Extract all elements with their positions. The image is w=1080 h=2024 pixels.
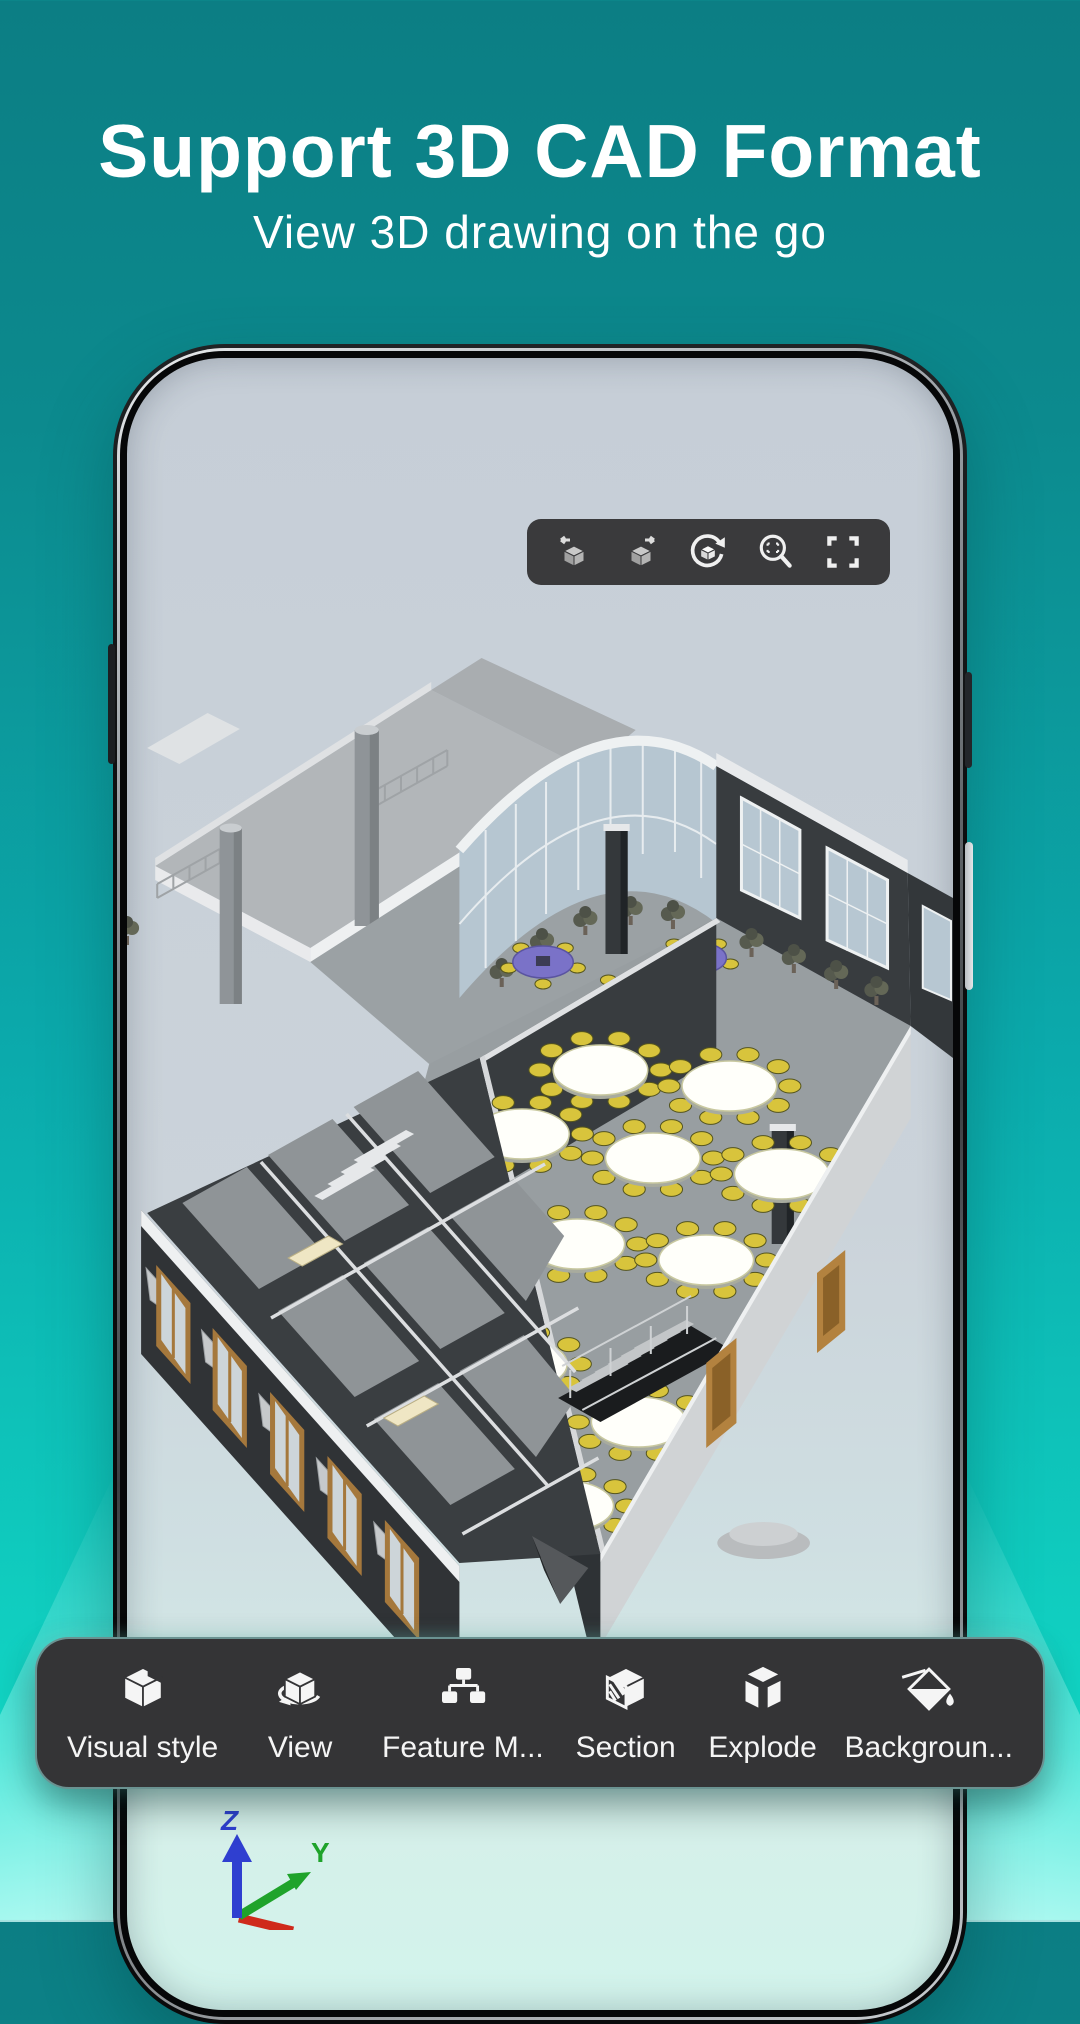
- volume-button: [965, 672, 972, 768]
- orbit-view-icon[interactable]: [682, 526, 734, 578]
- viewer-toolbar: [527, 519, 890, 585]
- toolbar-item-explode[interactable]: Explode: [708, 1661, 818, 1765]
- feature-toolbar: Visual style View Feature M...: [35, 1637, 1045, 1789]
- side-button-left: [108, 644, 115, 764]
- toolbar-item-background[interactable]: Backgroun...: [845, 1661, 1013, 1765]
- view-icon: [272, 1661, 328, 1722]
- section-icon: [598, 1661, 654, 1722]
- promo-screenshot: { "header": { "title": "Support 3D CAD F…: [0, 0, 1080, 1920]
- toolbar-item-label: Feature M...: [382, 1731, 544, 1765]
- feature-manager-icon: [435, 1661, 491, 1722]
- toolbar-item-label: Section: [576, 1731, 676, 1765]
- toolbar-item-view[interactable]: View: [245, 1661, 355, 1765]
- page-subtitle: View 3D drawing on the go: [0, 205, 1080, 259]
- axis-y-label: Y: [311, 1837, 330, 1868]
- axis-indicator: Z Y: [159, 1810, 359, 1930]
- power-button: [965, 842, 973, 990]
- toolbar-item-visual-style[interactable]: Visual style: [67, 1661, 218, 1765]
- background-icon: [901, 1661, 957, 1722]
- toolbar-item-label: Backgroun...: [845, 1731, 1013, 1765]
- previous-view-icon[interactable]: [548, 526, 600, 578]
- toolbar-item-feature-manager[interactable]: Feature M...: [382, 1661, 544, 1765]
- fullscreen-icon[interactable]: [817, 526, 869, 578]
- next-view-icon[interactable]: [615, 526, 667, 578]
- zoom-window-icon[interactable]: [750, 526, 802, 578]
- explode-icon: [735, 1661, 791, 1722]
- page-title: Support 3D CAD Format: [0, 108, 1080, 194]
- axis-z-label: Z: [220, 1810, 239, 1836]
- toolbar-item-label: Explode: [708, 1731, 816, 1765]
- toolbar-item-section[interactable]: Section: [571, 1661, 681, 1765]
- visual-style-icon: [115, 1661, 171, 1722]
- toolbar-item-label: Visual style: [67, 1731, 218, 1765]
- toolbar-item-label: View: [268, 1731, 332, 1765]
